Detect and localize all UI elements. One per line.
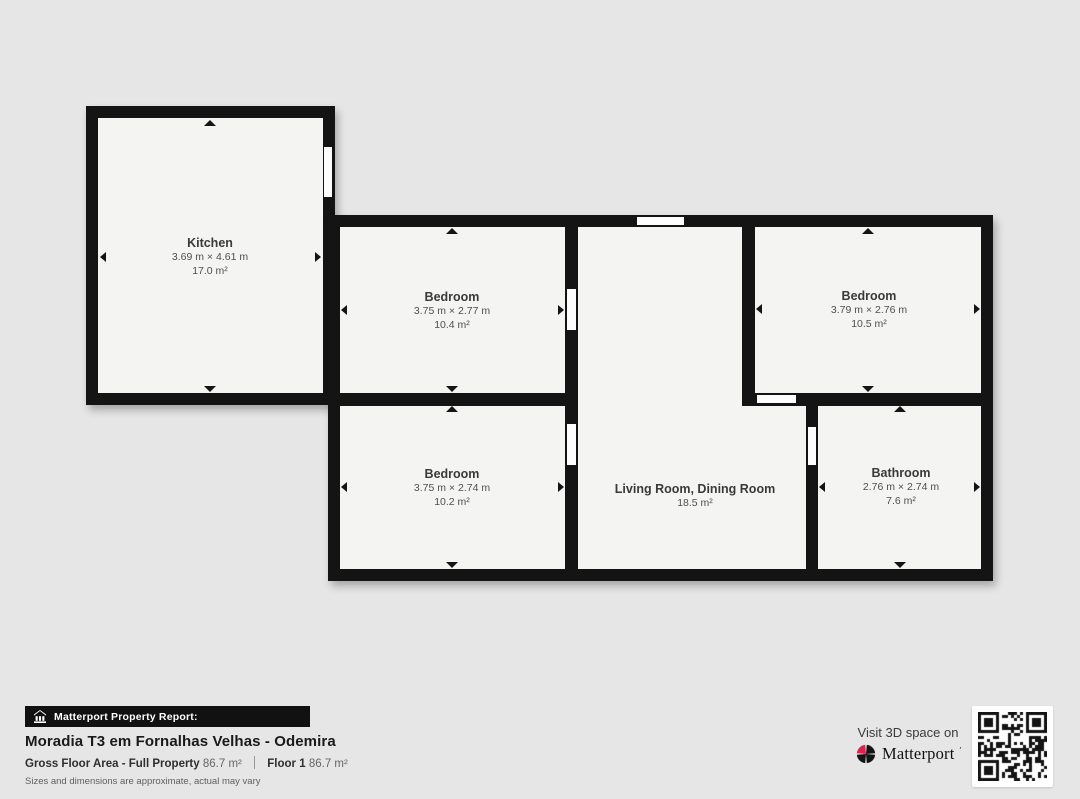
dimension-arrow-up	[446, 228, 458, 234]
dimension-arrow-up	[446, 406, 458, 412]
dimension-arrow-right	[974, 304, 980, 314]
dimension-arrow-down	[862, 386, 874, 392]
bedroom-right-door-slot	[757, 395, 796, 403]
floor-label: Floor 1	[267, 758, 305, 770]
room-dimensions: 3.75 m × 2.74 m	[414, 482, 490, 496]
dimension-arrow-down	[446, 562, 458, 568]
bedroom-top-door-slot	[567, 289, 576, 330]
dimension-arrow-left	[756, 304, 762, 314]
dimension-arrow-left	[819, 482, 825, 492]
room-name: Bathroom	[863, 465, 939, 481]
trademark-mark: ′	[960, 747, 962, 755]
dimension-arrow-right	[315, 252, 321, 262]
matterport-wordmark: Matterport	[882, 744, 955, 764]
floor-plan: Kitchen 3.69 m × 4.61 m 17.0 m² Bedroom …	[0, 0, 1080, 799]
room-dimensions: 2.76 m × 2.74 m	[863, 481, 939, 495]
dimension-arrow-left	[100, 252, 106, 262]
room-label-living-dining: Living Room, Dining Room 18.5 m²	[615, 481, 775, 511]
floor-area-stats: Gross Floor Area - Full Property 86.7 m²…	[25, 756, 348, 770]
dimension-arrow-left	[341, 305, 347, 315]
room-label-bedroom-top-middle: Bedroom 3.75 m × 2.77 m 10.4 m²	[414, 289, 490, 333]
room-label-bathroom: Bathroom 2.76 m × 2.74 m 7.6 m²	[863, 465, 939, 509]
room-area: 7.6 m²	[863, 495, 939, 509]
dimension-arrow-down	[894, 562, 906, 568]
room-dimensions: 3.75 m × 2.77 m	[414, 305, 490, 319]
room-label-bedroom-bottom-middle: Bedroom 3.75 m × 2.74 m 10.2 m²	[414, 466, 490, 510]
gross-floor-area-value: 86.7 m²	[203, 758, 242, 770]
dimension-arrow-down	[204, 386, 216, 392]
wall-mid-left	[332, 393, 578, 406]
wall-living-bedroom-right	[742, 227, 755, 405]
stats-divider	[254, 756, 255, 769]
dimension-arrow-right	[558, 482, 564, 492]
bedroom-bottom-door-slot	[567, 424, 576, 465]
disclaimer-text: Sizes and dimensions are approximate, ac…	[25, 776, 261, 787]
room-name: Bedroom	[831, 288, 907, 304]
gross-floor-area-label: Gross Floor Area - Full Property	[25, 758, 200, 770]
dimension-arrow-left	[341, 482, 347, 492]
visit-3d-space-text: Visit 3D space on	[850, 725, 966, 740]
dimension-arrow-down	[446, 386, 458, 392]
dimension-arrow-up	[894, 406, 906, 412]
room-name: Living Room, Dining Room	[615, 481, 775, 497]
room-area: 10.2 m²	[414, 496, 490, 510]
room-label-kitchen: Kitchen 3.69 m × 4.61 m 17.0 m²	[172, 235, 248, 279]
floor-value: 86.7 m²	[309, 758, 348, 770]
room-name: Bedroom	[414, 466, 490, 482]
room-name: Bedroom	[414, 289, 490, 305]
house-icon	[33, 710, 47, 723]
room-name: Kitchen	[172, 235, 248, 251]
qr-code-pattern	[978, 712, 1047, 781]
dimension-arrow-up	[204, 120, 216, 126]
qr-code	[972, 706, 1053, 787]
matterport-pinwheel-icon	[855, 743, 877, 765]
room-area: 10.5 m²	[831, 318, 907, 332]
property-title: Moradia T3 em Fornalhas Velhas - Odemira	[25, 733, 336, 750]
room-dimensions: 3.69 m × 4.61 m	[172, 251, 248, 265]
dimension-arrow-right	[974, 482, 980, 492]
dimension-arrow-right	[558, 305, 564, 315]
room-dimensions: 3.79 m × 2.76 m	[831, 304, 907, 318]
matterport-logo: Matterport′	[850, 743, 966, 765]
dimension-arrow-up	[862, 228, 874, 234]
room-area: 10.4 m²	[414, 319, 490, 333]
living-window-slot	[637, 217, 684, 225]
bathroom-door-slot	[808, 427, 816, 465]
kitchen-window-slot	[324, 147, 332, 197]
report-bar: Matterport Property Report:	[25, 706, 310, 727]
room-area: 18.5 m²	[615, 497, 775, 511]
report-bar-label: Matterport Property Report:	[54, 711, 198, 723]
room-label-bedroom-top-right: Bedroom 3.79 m × 2.76 m 10.5 m²	[831, 288, 907, 332]
room-area: 17.0 m²	[172, 265, 248, 279]
wall-living-bathroom	[806, 393, 818, 569]
